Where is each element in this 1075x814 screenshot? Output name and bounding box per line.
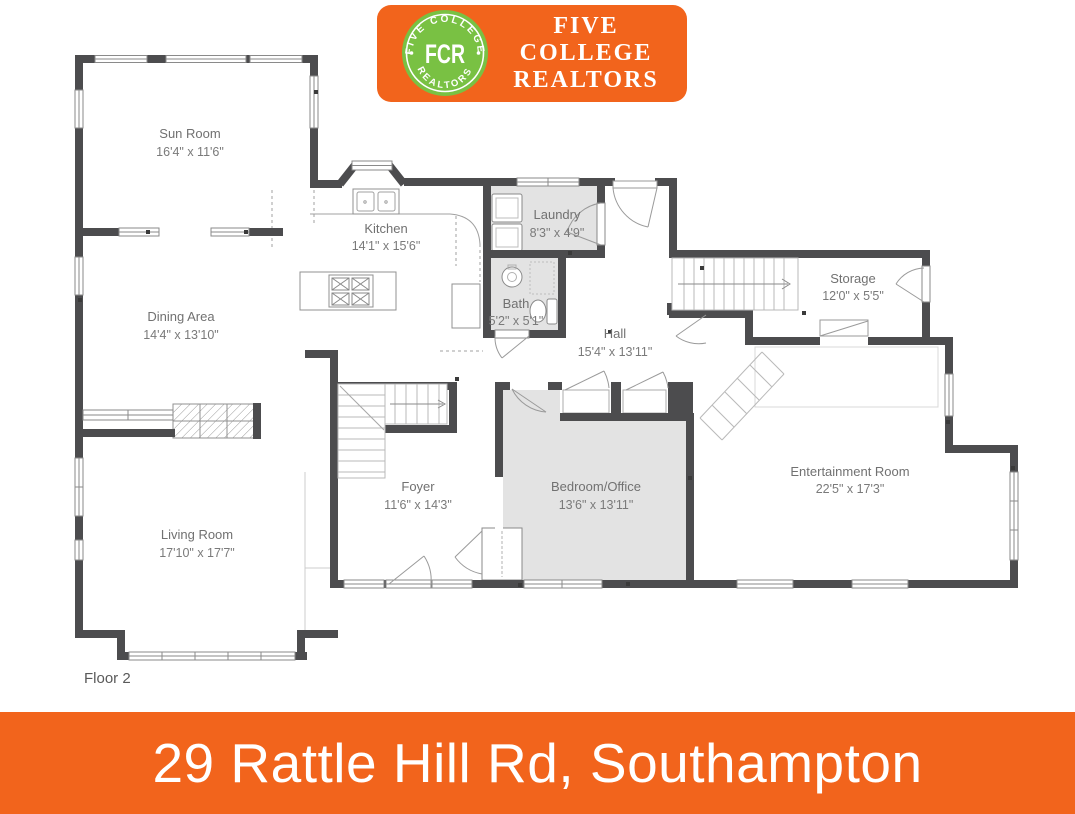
room-label-bedroom-office: Bedroom/Office [551, 479, 641, 494]
room-dim-dining: 14'4" x 13'10" [143, 328, 219, 342]
brand-badge: FIVE COLLEGE REALTORS FCR FIVE COLLEGE R… [377, 5, 687, 102]
floor-plan: Sun Room 16'4" x 11'6" Kitchen 14'1" x 1… [0, 0, 1075, 814]
company-name-line3: REALTORS [513, 67, 658, 94]
company-name-line1: FIVE [553, 13, 618, 40]
room-dim-bath: 5'2" x 5'1" [489, 314, 544, 328]
room-dim-bedroom-office: 13'6" x 13'11" [559, 498, 634, 512]
room-label-hall: Hall [604, 326, 627, 341]
address-banner: 29 Rattle Hill Rd, Southampton [0, 712, 1075, 814]
room-label-kitchen: Kitchen [364, 221, 407, 236]
room-label-living: Living Room [161, 527, 233, 542]
room-dim-laundry: 8'3" x 4'9" [530, 226, 585, 240]
stairs-main [672, 258, 798, 310]
room-label-laundry: Laundry [534, 207, 581, 222]
room-label-entertainment: Entertainment Room [790, 464, 909, 479]
room-label-sun-room: Sun Room [159, 126, 220, 141]
flyer: Sun Room 16'4" x 11'6" Kitchen 14'1" x 1… [0, 0, 1075, 814]
fcr-logo-svg: FIVE COLLEGE REALTORS FCR [401, 9, 489, 97]
room-label-foyer: Foyer [401, 479, 435, 494]
company-name-line2: COLLEGE [520, 40, 653, 67]
address-text: 29 Rattle Hill Rd, Southampton [152, 731, 922, 795]
stairs-entertainment [700, 352, 784, 440]
room-dim-sun-room: 16'4" x 11'6" [156, 145, 224, 159]
room-label-dining: Dining Area [147, 309, 215, 324]
logo-monogram: FCR [425, 39, 465, 69]
room-dim-kitchen: 14'1" x 15'6" [352, 239, 421, 253]
company-name: FIVE COLLEGE REALTORS [495, 11, 677, 96]
room-dim-storage: 12'0" x 5'5" [822, 289, 884, 303]
floor-label: Floor 2 [84, 670, 131, 687]
room-label-storage: Storage [830, 271, 876, 286]
room-label-bath: Bath [503, 296, 530, 311]
room-dim-living: 17'10" x 17'7" [159, 546, 235, 560]
room-dim-entertainment: 22'5" x 17'3" [816, 482, 885, 496]
room-dim-hall: 15'4" x 13'11" [578, 345, 653, 359]
room-dim-foyer: 11'6" x 14'3" [384, 498, 452, 512]
fcr-logo: FIVE COLLEGE REALTORS FCR [401, 9, 489, 97]
